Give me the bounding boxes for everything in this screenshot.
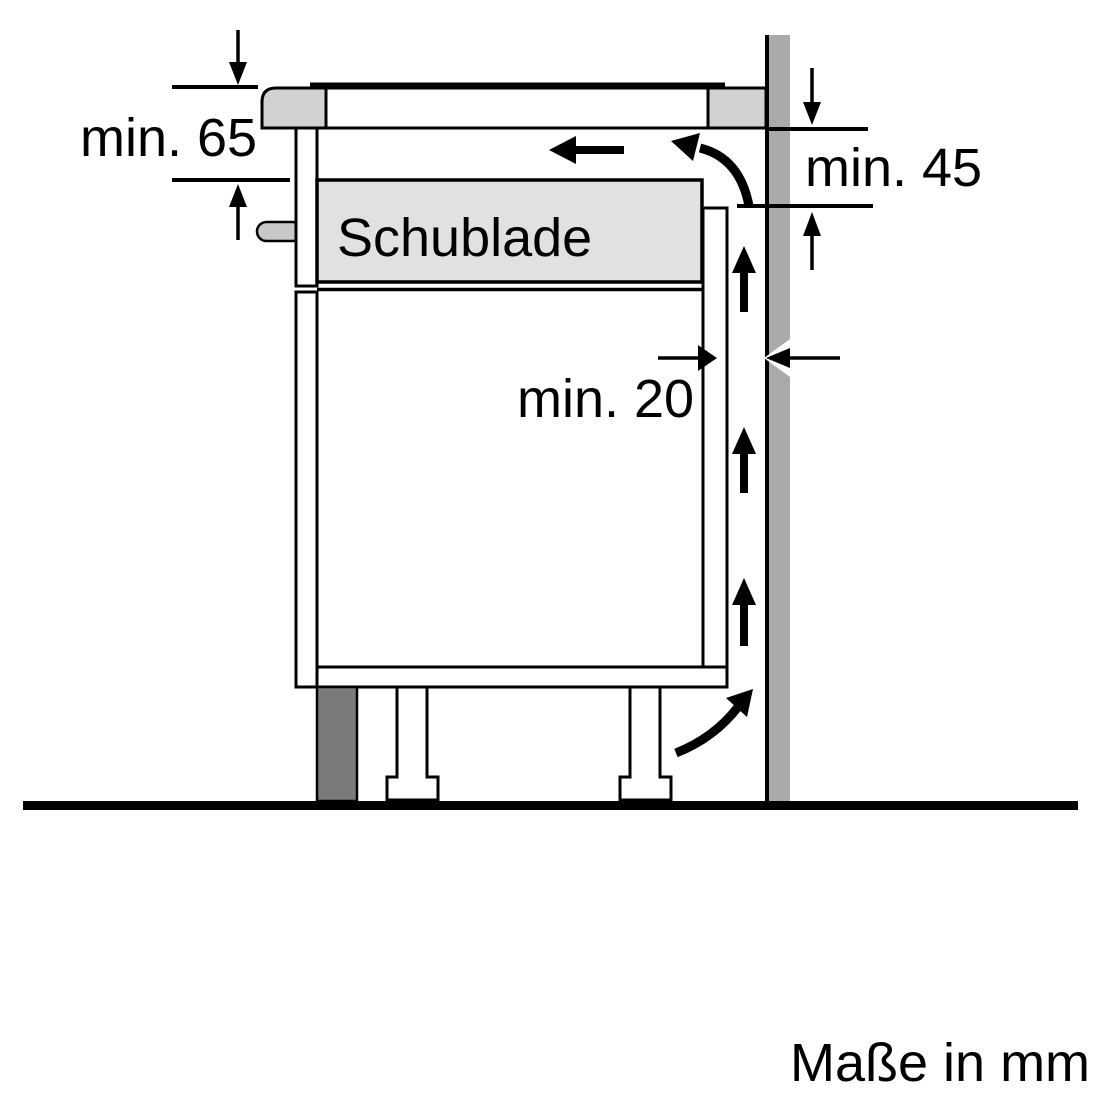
dim-label-min-65: min. 65: [80, 111, 257, 165]
dim-label-min-45: min. 45: [805, 141, 982, 195]
cabinet-front-panel-upper: [296, 128, 317, 286]
airflow-curved-arrow-top-icon: [671, 133, 700, 161]
cabinet-front-panel-lower: [296, 292, 317, 687]
dim-label-min-20: min. 20: [517, 372, 694, 426]
countertop-left-end: [262, 88, 326, 128]
drawer-label: Schublade: [337, 211, 592, 265]
airflow-left-arrow-icon: [549, 136, 576, 164]
airflow-up-arrow-icon: [732, 246, 756, 273]
airflow-curved-arrow-bottom-icon: [676, 707, 738, 753]
airflow-up-arrow-icon: [732, 578, 756, 605]
up-arrow-icon: [229, 184, 247, 207]
down-arrow-icon: [803, 102, 821, 125]
countertop-right-end: [708, 88, 766, 128]
countertop: [262, 83, 766, 129]
hob-glass-top: [310, 83, 725, 89]
wall-surface: [769, 35, 790, 801]
down-arrow-icon: [229, 62, 247, 85]
cabinet-bottom-panel: [317, 667, 727, 687]
cabinet-leg-left: [387, 687, 438, 800]
units-note: Maße in mm: [790, 1036, 1090, 1090]
airflow-up-arrow-icon: [732, 427, 756, 454]
floor-line: [23, 801, 1078, 810]
airflow-curved-arrow-top-icon: [700, 148, 749, 206]
hob-body: [326, 88, 708, 128]
cabinet-rear-panel: [703, 208, 727, 670]
cabinet-leg-right: [620, 687, 671, 800]
installation-diagram: min. 65 min. 45 min. 20 Schublade Maße i…: [0, 0, 1100, 1100]
plinth-block: [317, 687, 357, 801]
wall: [765, 35, 790, 801]
up-arrow-icon: [803, 212, 821, 236]
